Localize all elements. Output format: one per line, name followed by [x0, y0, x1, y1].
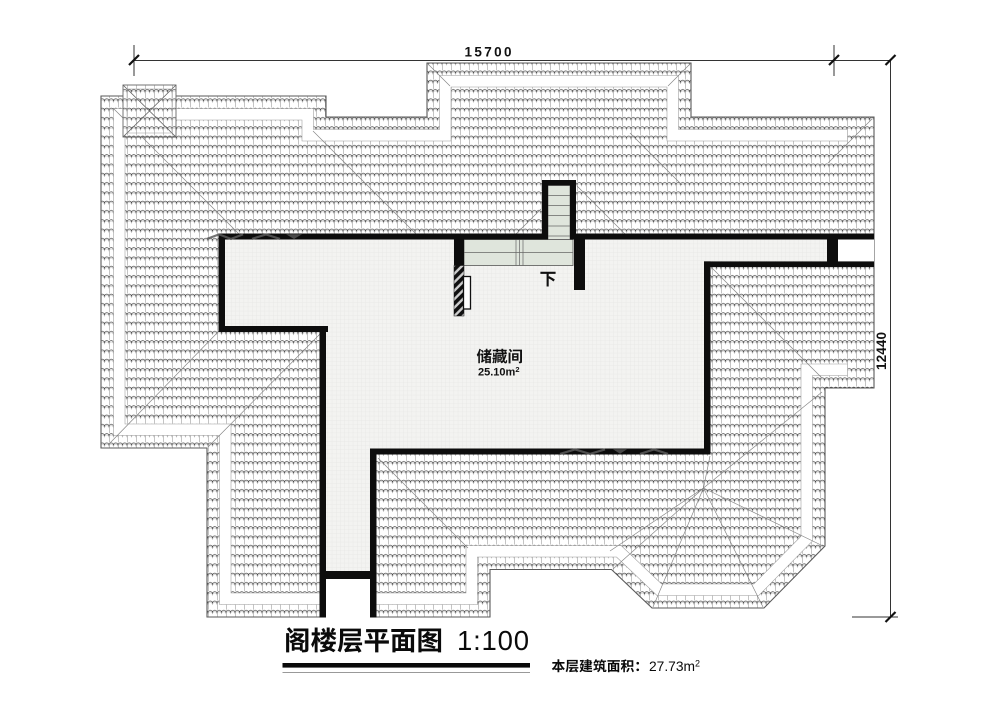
svg-text:27.73m2: 27.73m2	[649, 659, 700, 675]
svg-text:1:100: 1:100	[457, 625, 529, 656]
svg-text:12440: 12440	[874, 332, 889, 370]
svg-text:15700: 15700	[465, 45, 512, 60]
svg-text:25.10m2: 25.10m2	[478, 365, 519, 379]
